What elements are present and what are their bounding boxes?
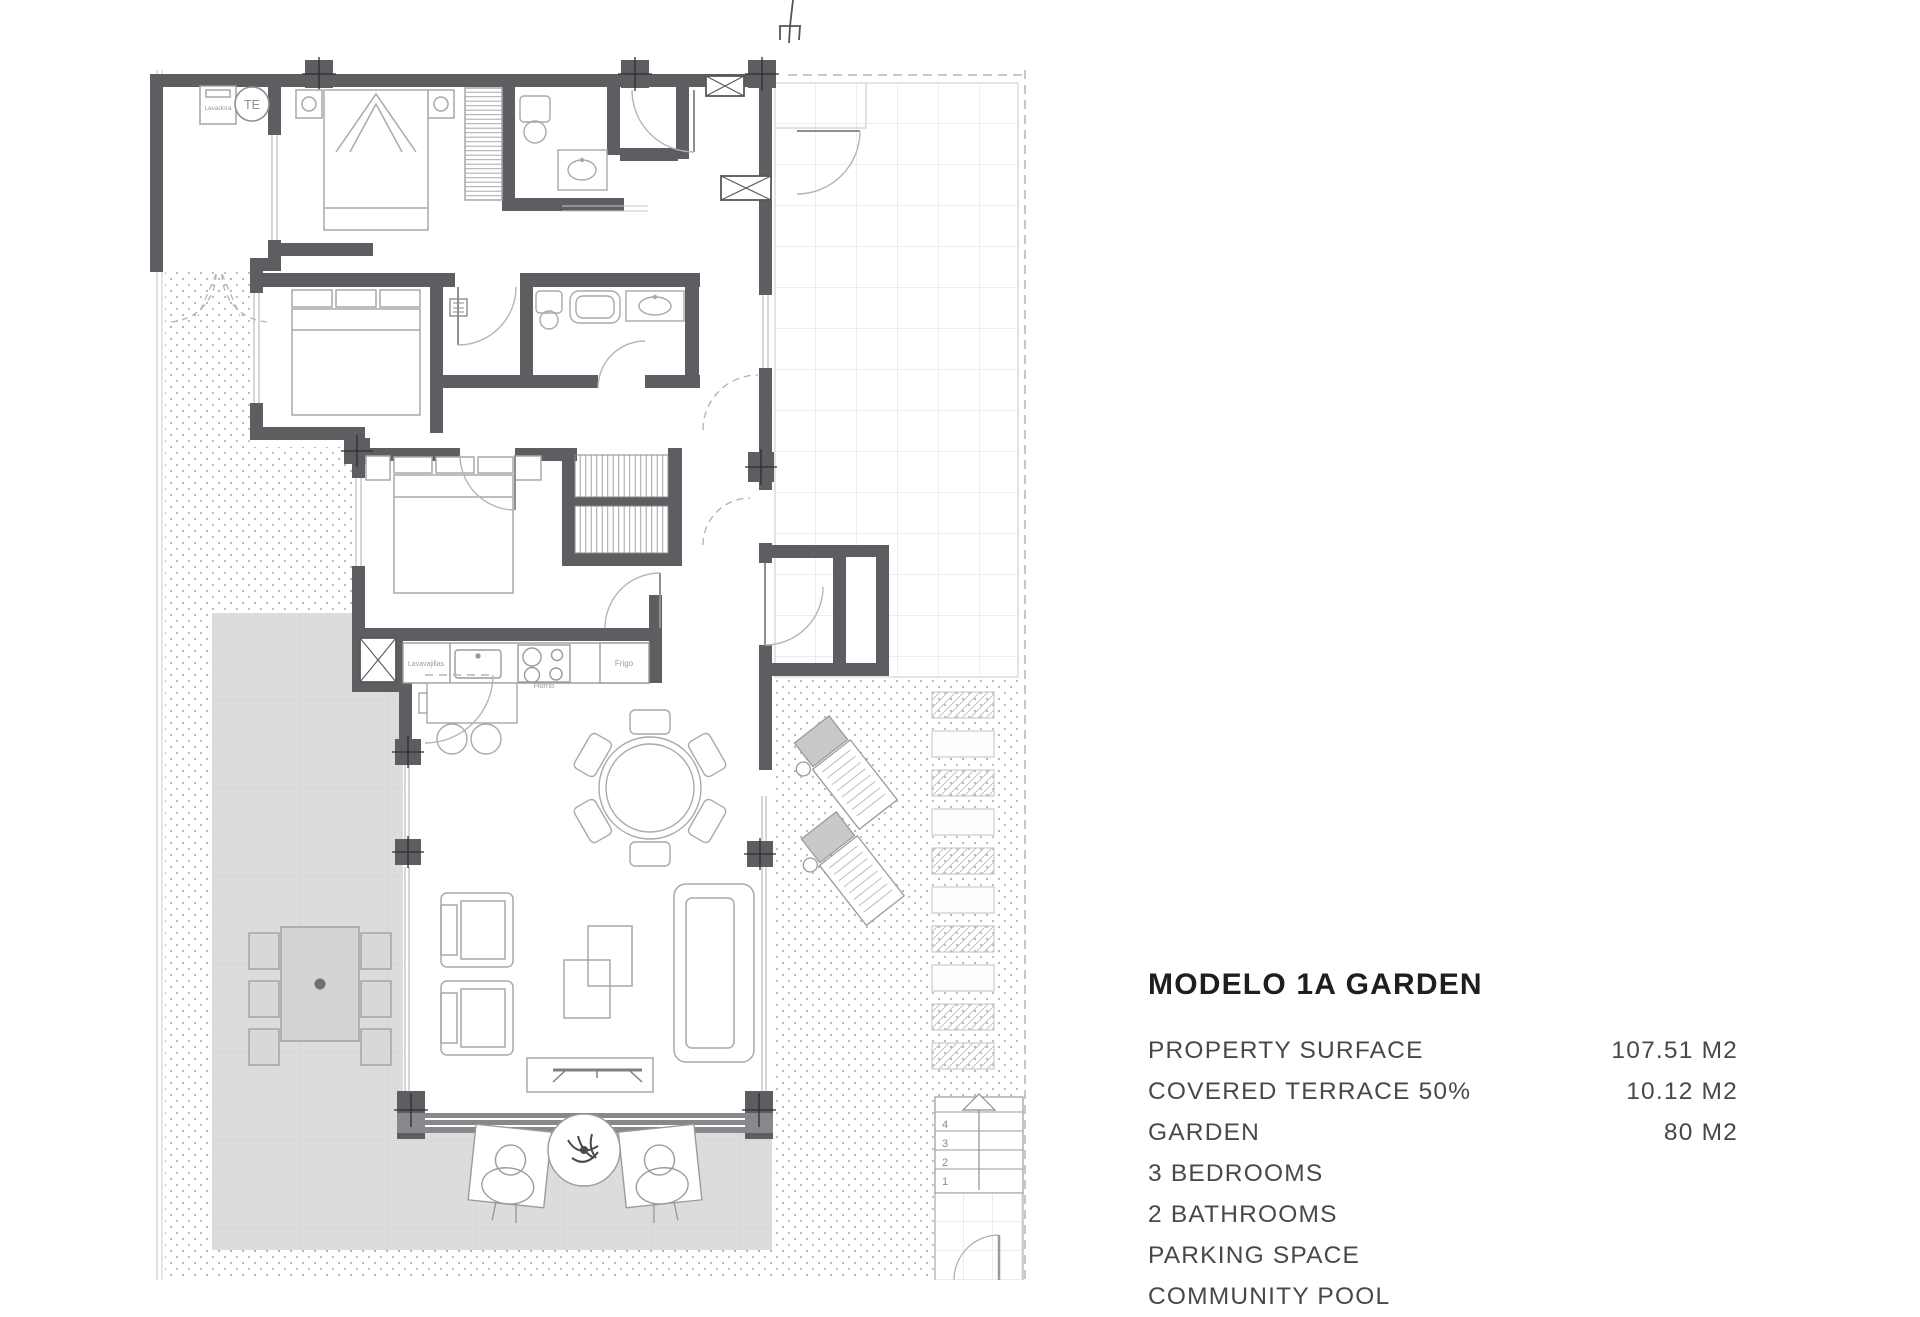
spec-label: GARDEN [1148, 1112, 1260, 1153]
kitchen-sink [455, 650, 501, 678]
stair-number: 2 [942, 1157, 948, 1169]
spec-label: 2 BATHROOMS [1148, 1194, 1338, 1235]
spec-row: COVERED TERRACE 50% 10.12 M2 [1148, 1071, 1738, 1112]
double-bed [292, 309, 420, 415]
spec-label: PARKING SPACE [1148, 1235, 1360, 1276]
outdoor-chair [361, 1029, 391, 1065]
stair-number: 3 [942, 1138, 948, 1150]
vent-shaft [721, 176, 771, 200]
spec-label: PROPERTY SURFACE [1148, 1030, 1424, 1071]
headboard-cushion [478, 457, 513, 473]
planter [548, 1114, 620, 1186]
dishwasher-label: Lavavajillas [408, 661, 445, 668]
vestibule-interior [846, 557, 876, 663]
spec-rows: PROPERTY SURFACE 107.51 M2 COVERED TERRA… [1148, 1030, 1738, 1317]
stair-number: 4 [942, 1119, 948, 1131]
spec-label: COMMUNITY POOL [1148, 1276, 1390, 1317]
nightstand [296, 90, 322, 118]
laundry-room: Lavadora TE [200, 86, 269, 124]
wardrobe [465, 88, 502, 200]
spec-value: 107.51 M2 [1611, 1030, 1738, 1071]
bedroom-2 [292, 290, 420, 415]
headboard-cushion [292, 290, 332, 307]
washbasin [558, 150, 607, 190]
spec-row: 2 BATHROOMS [1148, 1194, 1738, 1235]
spec-row: COMMUNITY POOL [1148, 1276, 1738, 1317]
outdoor-chair [249, 933, 279, 969]
outdoor-chair [361, 981, 391, 1017]
tiled-walkway [775, 83, 1018, 677]
spec-row: GARDEN 80 M2 [1148, 1112, 1738, 1153]
plan-title: MODELO 1A GARDEN [1148, 968, 1738, 1002]
oven-label: Horno [534, 681, 554, 690]
spec-label: COVERED TERRACE 50% [1148, 1071, 1471, 1112]
spec-row: PARKING SPACE [1148, 1235, 1738, 1276]
fridge-label: Frigo [615, 659, 634, 668]
nightstand [428, 90, 454, 118]
site-marker-symbol [779, 0, 801, 43]
headboard-cushion [336, 290, 376, 307]
outdoor-chair [361, 933, 391, 969]
spec-value: 10.12 M2 [1626, 1071, 1738, 1112]
spec-value: 80 M2 [1664, 1112, 1738, 1153]
exterior-stairs: 4 3 2 1 [935, 1094, 1023, 1280]
cooktop [518, 645, 570, 683]
nightstand [515, 456, 541, 480]
spec-row: 3 BEDROOMS [1148, 1153, 1738, 1194]
double-bed [394, 475, 513, 593]
water-heater-label: TE [244, 98, 260, 112]
headboard-cushion [380, 290, 420, 307]
vent-shaft [706, 76, 744, 96]
washer-label: Lavadora [204, 105, 231, 112]
spec-row: PROPERTY SURFACE 107.51 M2 [1148, 1030, 1738, 1071]
stair-number: 1 [942, 1176, 948, 1188]
double-bed [324, 90, 428, 230]
headboard-cushion [436, 457, 474, 473]
bathtub [570, 291, 620, 323]
outdoor-chair [249, 981, 279, 1017]
washbasin [626, 291, 684, 321]
outdoor-chair [249, 1029, 279, 1065]
info-panel: MODELO 1A GARDEN PROPERTY SURFACE 107.51… [1148, 968, 1738, 1317]
headboard-cushion [394, 457, 432, 473]
vent-shaft [360, 638, 396, 682]
spec-label: 3 BEDROOMS [1148, 1153, 1323, 1194]
nightstand [366, 456, 390, 480]
